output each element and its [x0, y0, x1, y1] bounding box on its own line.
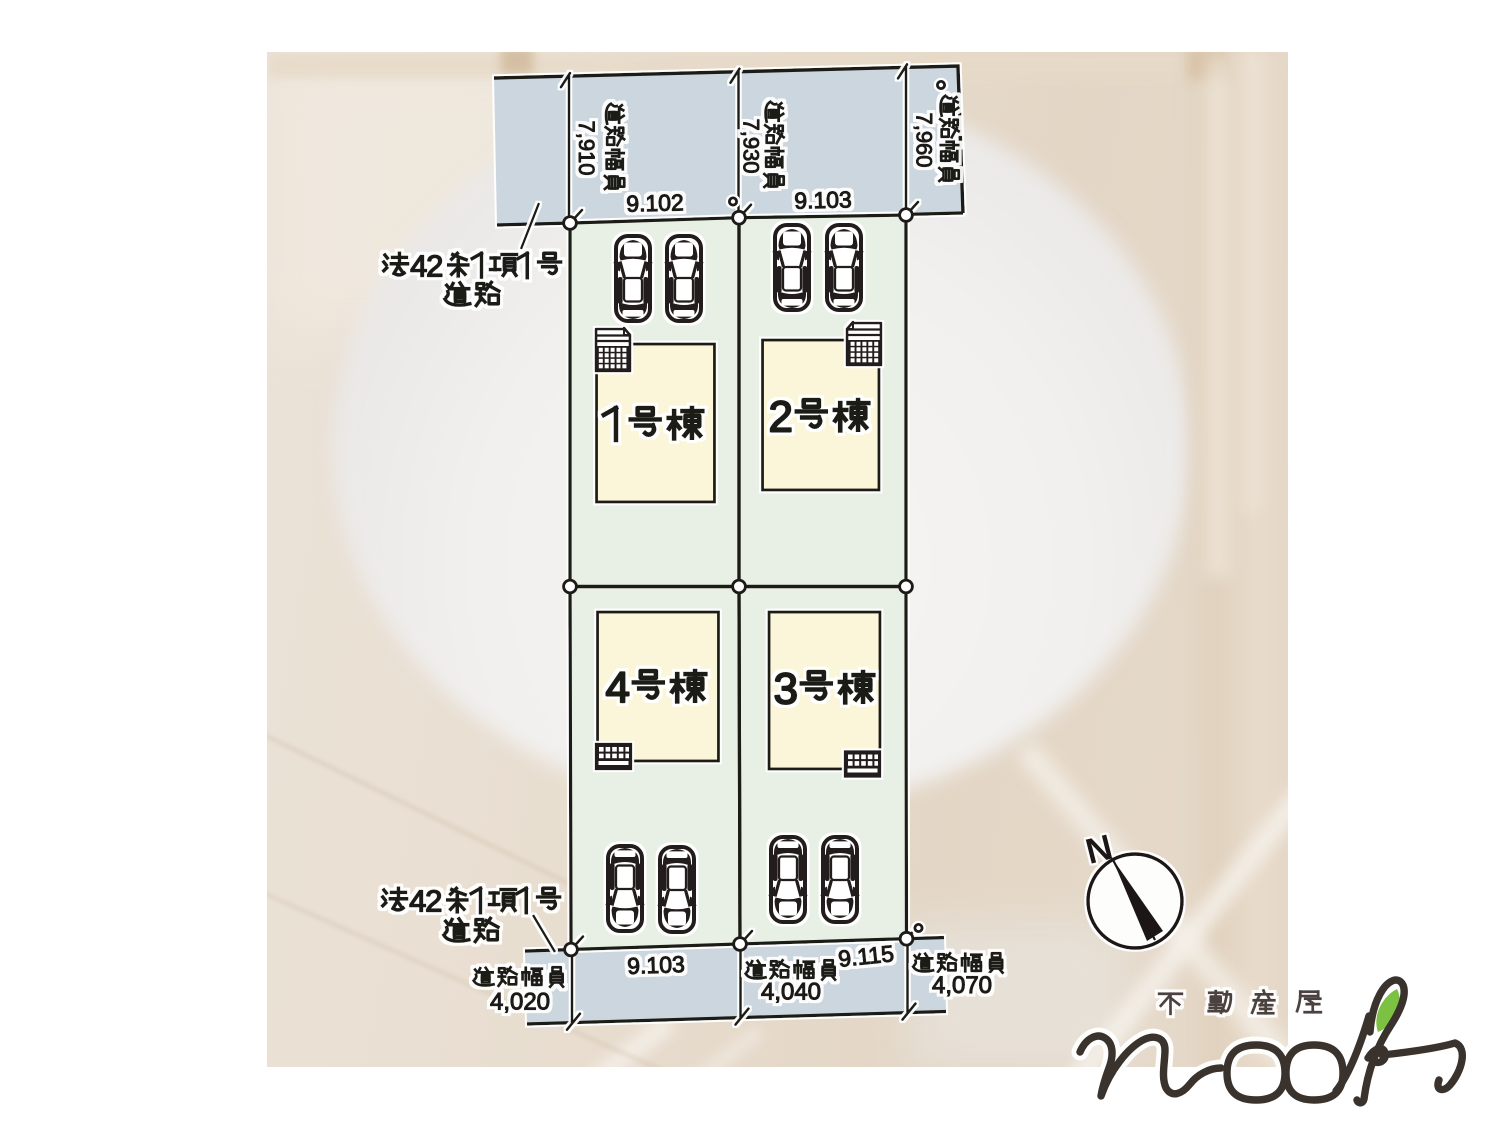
svg-text:2: 2 [426, 249, 443, 284]
svg-text:9.102: 9.102 [626, 189, 684, 216]
svg-text:3: 3 [773, 664, 797, 713]
svg-text:4: 4 [410, 249, 427, 284]
svg-text:4,070: 4,070 [932, 972, 992, 999]
svg-text:9.103: 9.103 [627, 951, 685, 979]
svg-text:7,910: 7,910 [574, 120, 599, 175]
svg-text:9.103: 9.103 [794, 186, 852, 213]
svg-text:2: 2 [768, 392, 792, 441]
svg-text:N: N [1081, 826, 1116, 872]
svg-text:7,930: 7,930 [739, 118, 764, 173]
svg-text:4,020: 4,020 [490, 989, 550, 1016]
svg-text:2: 2 [425, 884, 442, 919]
svg-text:4: 4 [605, 663, 629, 712]
svg-text:7,960: 7,960 [912, 112, 937, 167]
svg-text:4,040: 4,040 [761, 979, 821, 1006]
svg-text:4: 4 [409, 884, 426, 919]
